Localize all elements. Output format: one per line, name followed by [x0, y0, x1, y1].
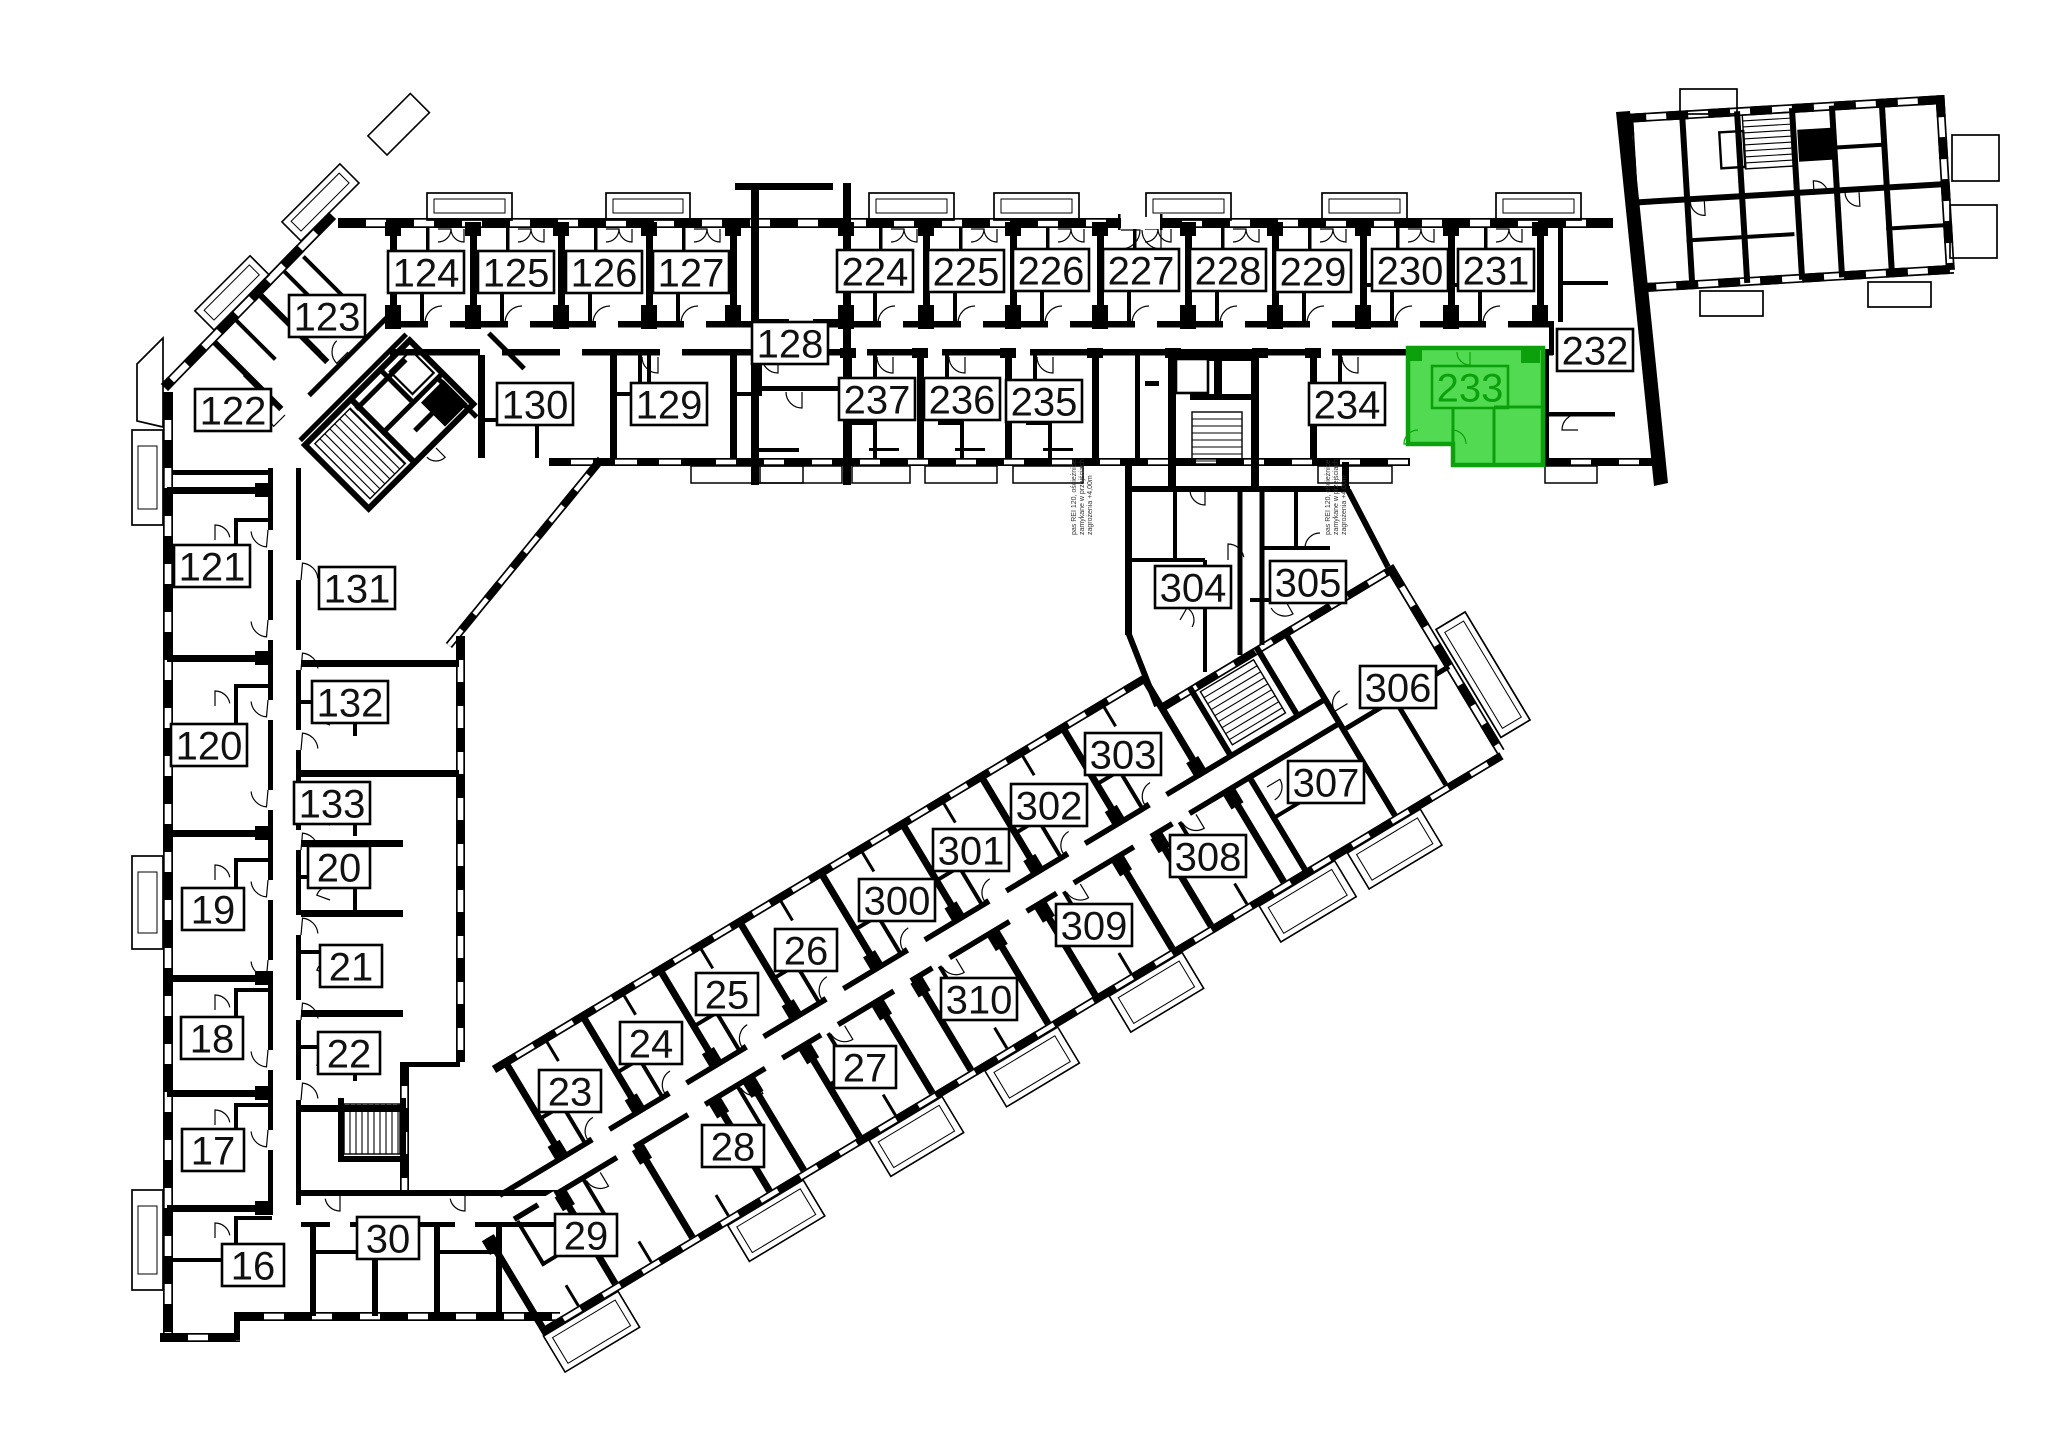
- svg-text:21: 21: [329, 945, 374, 989]
- svg-text:224: 224: [842, 250, 909, 294]
- svg-text:303: 303: [1090, 733, 1157, 777]
- svg-text:126: 126: [571, 251, 638, 295]
- svg-text:231: 231: [1463, 249, 1530, 293]
- svg-text:237: 237: [844, 378, 911, 422]
- svg-text:228: 228: [1195, 249, 1262, 293]
- svg-text:229: 229: [1280, 250, 1347, 294]
- svg-text:307: 307: [1293, 761, 1360, 805]
- svg-text:133: 133: [299, 782, 366, 826]
- svg-text:233: 233: [1437, 366, 1504, 410]
- svg-text:131: 131: [324, 567, 391, 611]
- svg-text:132: 132: [317, 681, 384, 725]
- svg-text:227: 227: [1108, 249, 1175, 293]
- svg-text:17: 17: [191, 1129, 236, 1173]
- svg-text:305: 305: [1275, 561, 1342, 605]
- svg-text:232: 232: [1562, 329, 1629, 373]
- svg-text:120: 120: [176, 724, 243, 768]
- svg-text:20: 20: [317, 846, 362, 890]
- svg-text:129: 129: [636, 383, 703, 427]
- svg-text:128: 128: [757, 322, 824, 366]
- svg-text:22: 22: [327, 1032, 372, 1076]
- svg-text:29: 29: [564, 1214, 609, 1258]
- svg-text:309: 309: [1061, 904, 1128, 948]
- svg-text:301: 301: [938, 829, 1005, 873]
- svg-text:18: 18: [190, 1017, 235, 1061]
- svg-text:123: 123: [294, 295, 361, 339]
- svg-text:122: 122: [200, 389, 267, 433]
- svg-text:30: 30: [366, 1217, 411, 1261]
- svg-text:230: 230: [1377, 249, 1444, 293]
- svg-text:124: 124: [393, 251, 460, 295]
- svg-text:23: 23: [548, 1070, 593, 1114]
- svg-text:308: 308: [1175, 835, 1242, 879]
- svg-text:306: 306: [1365, 666, 1432, 710]
- svg-text:26: 26: [784, 929, 829, 973]
- svg-text:19: 19: [191, 888, 236, 932]
- svg-text:235: 235: [1011, 380, 1078, 424]
- svg-text:130: 130: [502, 383, 569, 427]
- svg-text:302: 302: [1016, 784, 1083, 828]
- svg-text:310: 310: [946, 978, 1013, 1022]
- svg-text:16: 16: [231, 1244, 276, 1288]
- svg-text:304: 304: [1160, 566, 1227, 610]
- svg-text:225: 225: [933, 250, 1000, 294]
- svg-text:127: 127: [658, 251, 725, 295]
- svg-text:121: 121: [179, 545, 246, 589]
- svg-text:28: 28: [711, 1125, 756, 1169]
- svg-text:300: 300: [864, 879, 931, 923]
- svg-text:234: 234: [1314, 383, 1381, 427]
- svg-text:27: 27: [843, 1046, 888, 1090]
- svg-text:24: 24: [629, 1022, 674, 1066]
- svg-text:125: 125: [483, 251, 550, 295]
- svg-text:236: 236: [929, 378, 996, 422]
- svg-text:226: 226: [1018, 249, 1085, 293]
- svg-text:25: 25: [705, 973, 750, 1017]
